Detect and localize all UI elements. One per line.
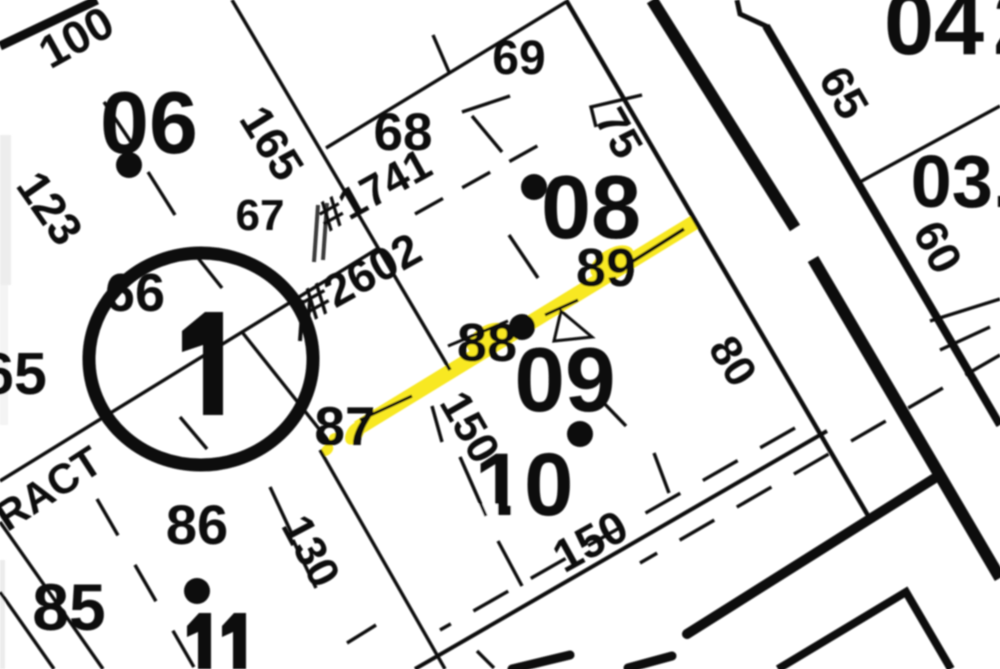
svg-text:06: 06 bbox=[100, 73, 198, 172]
svg-text:69: 69 bbox=[492, 32, 545, 85]
svg-text:87: 87 bbox=[314, 395, 375, 457]
svg-text:86: 86 bbox=[166, 493, 228, 556]
svg-text:89: 89 bbox=[576, 238, 636, 298]
svg-text:09: 09 bbox=[514, 330, 615, 431]
svg-text:04: 04 bbox=[884, 0, 984, 74]
svg-text:03.: 03. bbox=[911, 140, 1000, 223]
svg-text:67: 67 bbox=[236, 191, 285, 240]
svg-text:85: 85 bbox=[32, 570, 105, 644]
svg-text:2: 2 bbox=[993, 0, 1000, 74]
svg-text:65: 65 bbox=[0, 341, 47, 407]
svg-text:88: 88 bbox=[457, 313, 517, 373]
